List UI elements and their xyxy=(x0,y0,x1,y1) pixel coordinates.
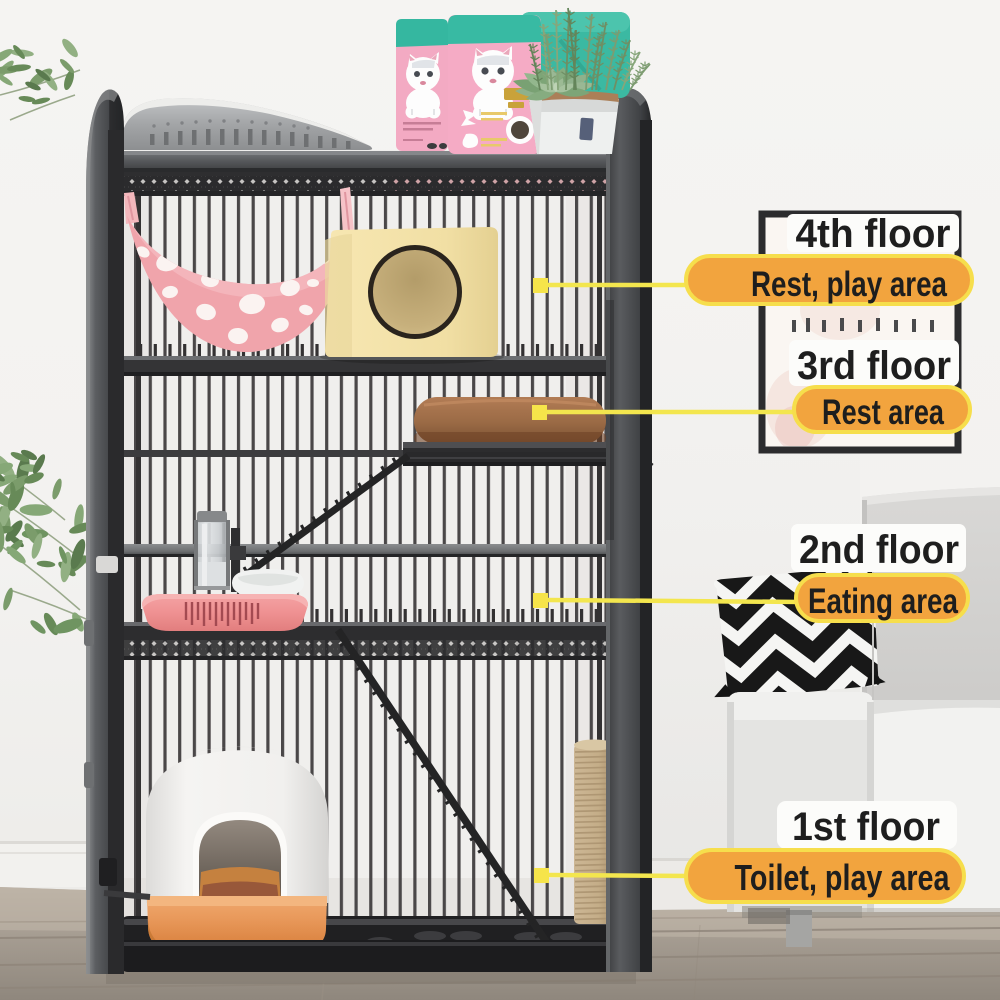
svg-text:3rd floor: 3rd floor xyxy=(797,344,951,388)
svg-text:4th floor: 4th floor xyxy=(796,212,951,256)
svg-text:Rest area: Rest area xyxy=(822,393,944,432)
svg-text:1st floor: 1st floor xyxy=(792,805,940,849)
svg-text:Eating area: Eating area xyxy=(808,582,958,621)
svg-text:Toilet, play area: Toilet, play area xyxy=(735,857,951,898)
svg-text:Rest, play area: Rest, play area xyxy=(751,265,947,304)
svg-text:2nd floor: 2nd floor xyxy=(799,528,959,572)
